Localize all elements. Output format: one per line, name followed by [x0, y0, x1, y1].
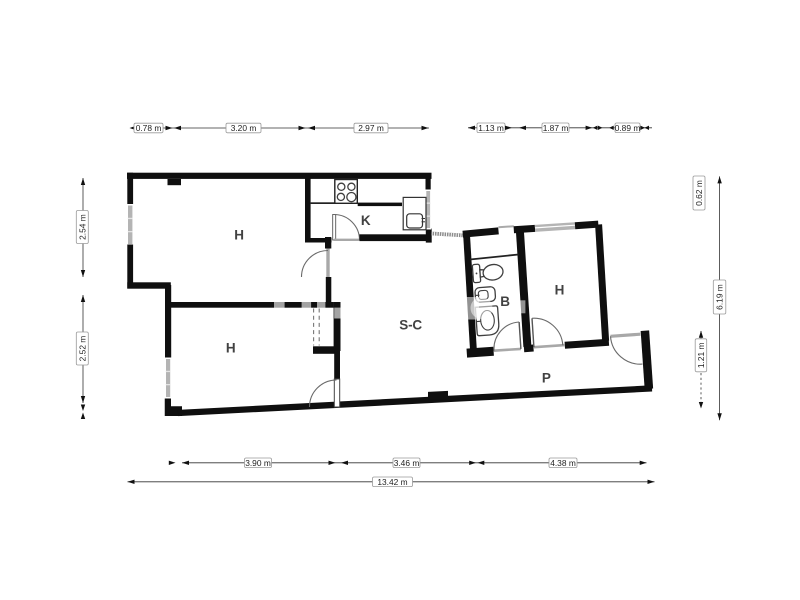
svg-text:2.52 m: 2.52 m — [77, 336, 87, 362]
svg-text:K: K — [361, 213, 371, 228]
svg-text:2.54 m: 2.54 m — [77, 214, 87, 240]
svg-text:4.38 m: 4.38 m — [550, 458, 576, 468]
svg-text:P: P — [542, 371, 551, 386]
svg-text:0.78 m: 0.78 m — [136, 123, 162, 133]
svg-text:1.21 m: 1.21 m — [696, 342, 706, 368]
svg-text:13.42 m: 13.42 m — [377, 477, 407, 487]
svg-text:6.19 m: 6.19 m — [715, 284, 725, 310]
svg-text:H: H — [555, 283, 565, 298]
svg-text:3.20 m: 3.20 m — [231, 123, 257, 133]
svg-text:H: H — [234, 228, 244, 243]
svg-text:0.89 m: 0.89 m — [615, 123, 641, 133]
svg-text:1.87 m: 1.87 m — [543, 123, 569, 133]
svg-text:2.97 m: 2.97 m — [358, 123, 384, 133]
svg-text:H: H — [226, 341, 236, 356]
svg-text:0.62 m: 0.62 m — [694, 180, 704, 206]
svg-text:B: B — [500, 294, 510, 309]
svg-text:1.13 m: 1.13 m — [478, 123, 504, 133]
svg-text:3.46 m: 3.46 m — [394, 458, 420, 468]
svg-text:3.90 m: 3.90 m — [245, 458, 271, 468]
svg-text:S-C: S-C — [399, 318, 422, 333]
